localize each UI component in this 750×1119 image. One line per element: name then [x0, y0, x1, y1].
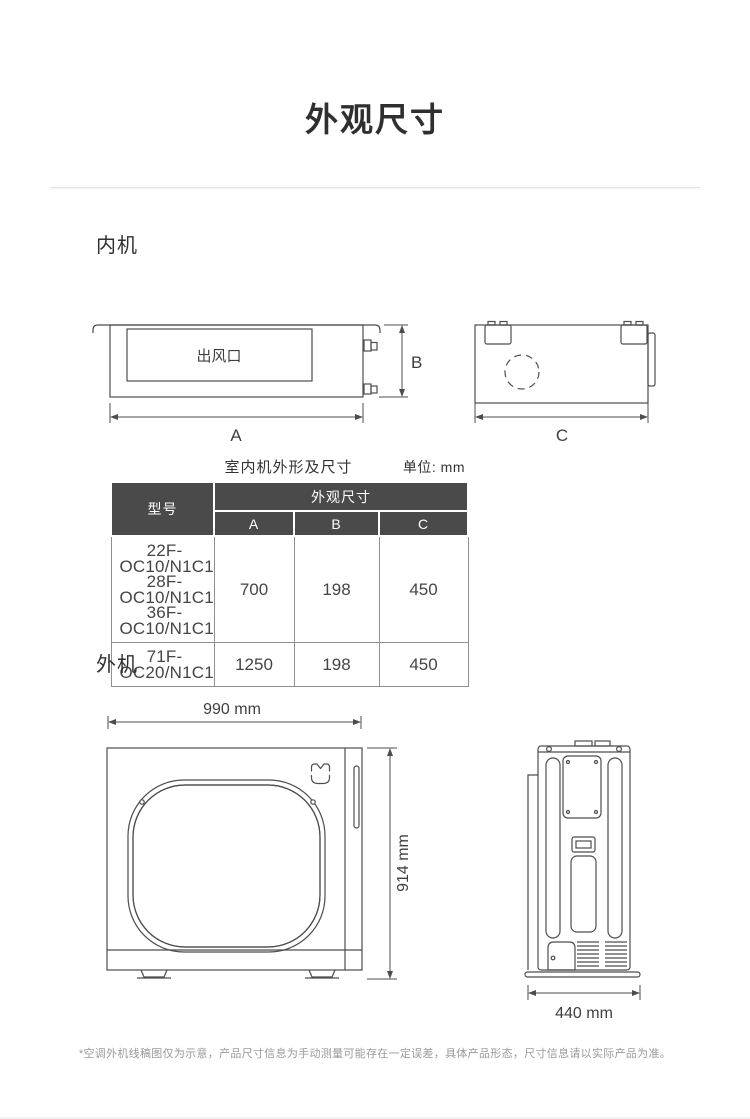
model-line: 22F-OC10/N1C1: [120, 543, 210, 574]
table-row: 71F-OC20/N1C1 1250 198 450: [111, 643, 468, 687]
table-caption-row: 室内机外形及尺寸 单位: mm: [110, 456, 467, 476]
indoor-side-drawing: C: [465, 300, 680, 448]
model-line: 28F-OC10/N1C1: [120, 574, 210, 605]
value-b-cell: 198: [294, 536, 379, 643]
outdoor-height-label: 914 mm: [395, 834, 412, 892]
page-title: 外观尺寸: [0, 100, 750, 140]
value-a-cell: 700: [214, 536, 294, 643]
dim-c-label: C: [556, 426, 568, 445]
outdoor-width-label: 990 mm: [203, 701, 261, 718]
outdoor-depth-label: 440 mm: [555, 1005, 613, 1020]
table-row: 22F-OC10/N1C1 28F-OC10/N1C1 36F-OC10/N1C…: [111, 536, 468, 643]
indoor-section-label: 内机: [96, 233, 138, 259]
value-b-cell: 198: [294, 643, 379, 687]
col-b-header: B: [294, 511, 379, 536]
mijia-logo-icon: [312, 764, 330, 784]
table-unit-label: 单位: mm: [403, 457, 465, 477]
model-line: 36F-OC10/N1C1: [120, 605, 210, 636]
value-a-cell: 1250: [214, 643, 294, 687]
outdoor-front-drawing: 990 mm: [95, 698, 425, 990]
col-a-header: A: [214, 511, 294, 536]
value-c-cell: 450: [379, 643, 468, 687]
dim-b-label: B: [411, 353, 422, 372]
title-divider: [50, 187, 700, 188]
footnote: *空调外机线稿图仅为示意，产品尺寸信息为手动测量可能存在一定误差，具体产品形态，…: [0, 1045, 750, 1061]
dim-a-label: A: [230, 426, 242, 445]
value-c-cell: 450: [379, 536, 468, 643]
model-column-header: 型号: [111, 482, 214, 536]
model-cell: 22F-OC10/N1C1 28F-OC10/N1C1 36F-OC10/N1C…: [111, 536, 214, 643]
dimensions-group-header: 外观尺寸: [214, 482, 468, 511]
outlet-label: 出风口: [196, 348, 241, 365]
indoor-front-drawing: 出风口 B A: [88, 300, 438, 448]
col-c-header: C: [379, 511, 468, 536]
spec-page: 外观尺寸 内机 出风口 B: [0, 0, 750, 1119]
outdoor-section-label: 外机: [96, 652, 138, 678]
indoor-spec-table: 型号 外观尺寸 A B C 22F-OC10/N1C1 28F-OC10/N1C…: [110, 481, 467, 687]
outdoor-side-drawing: 440 mm: [515, 730, 690, 1020]
